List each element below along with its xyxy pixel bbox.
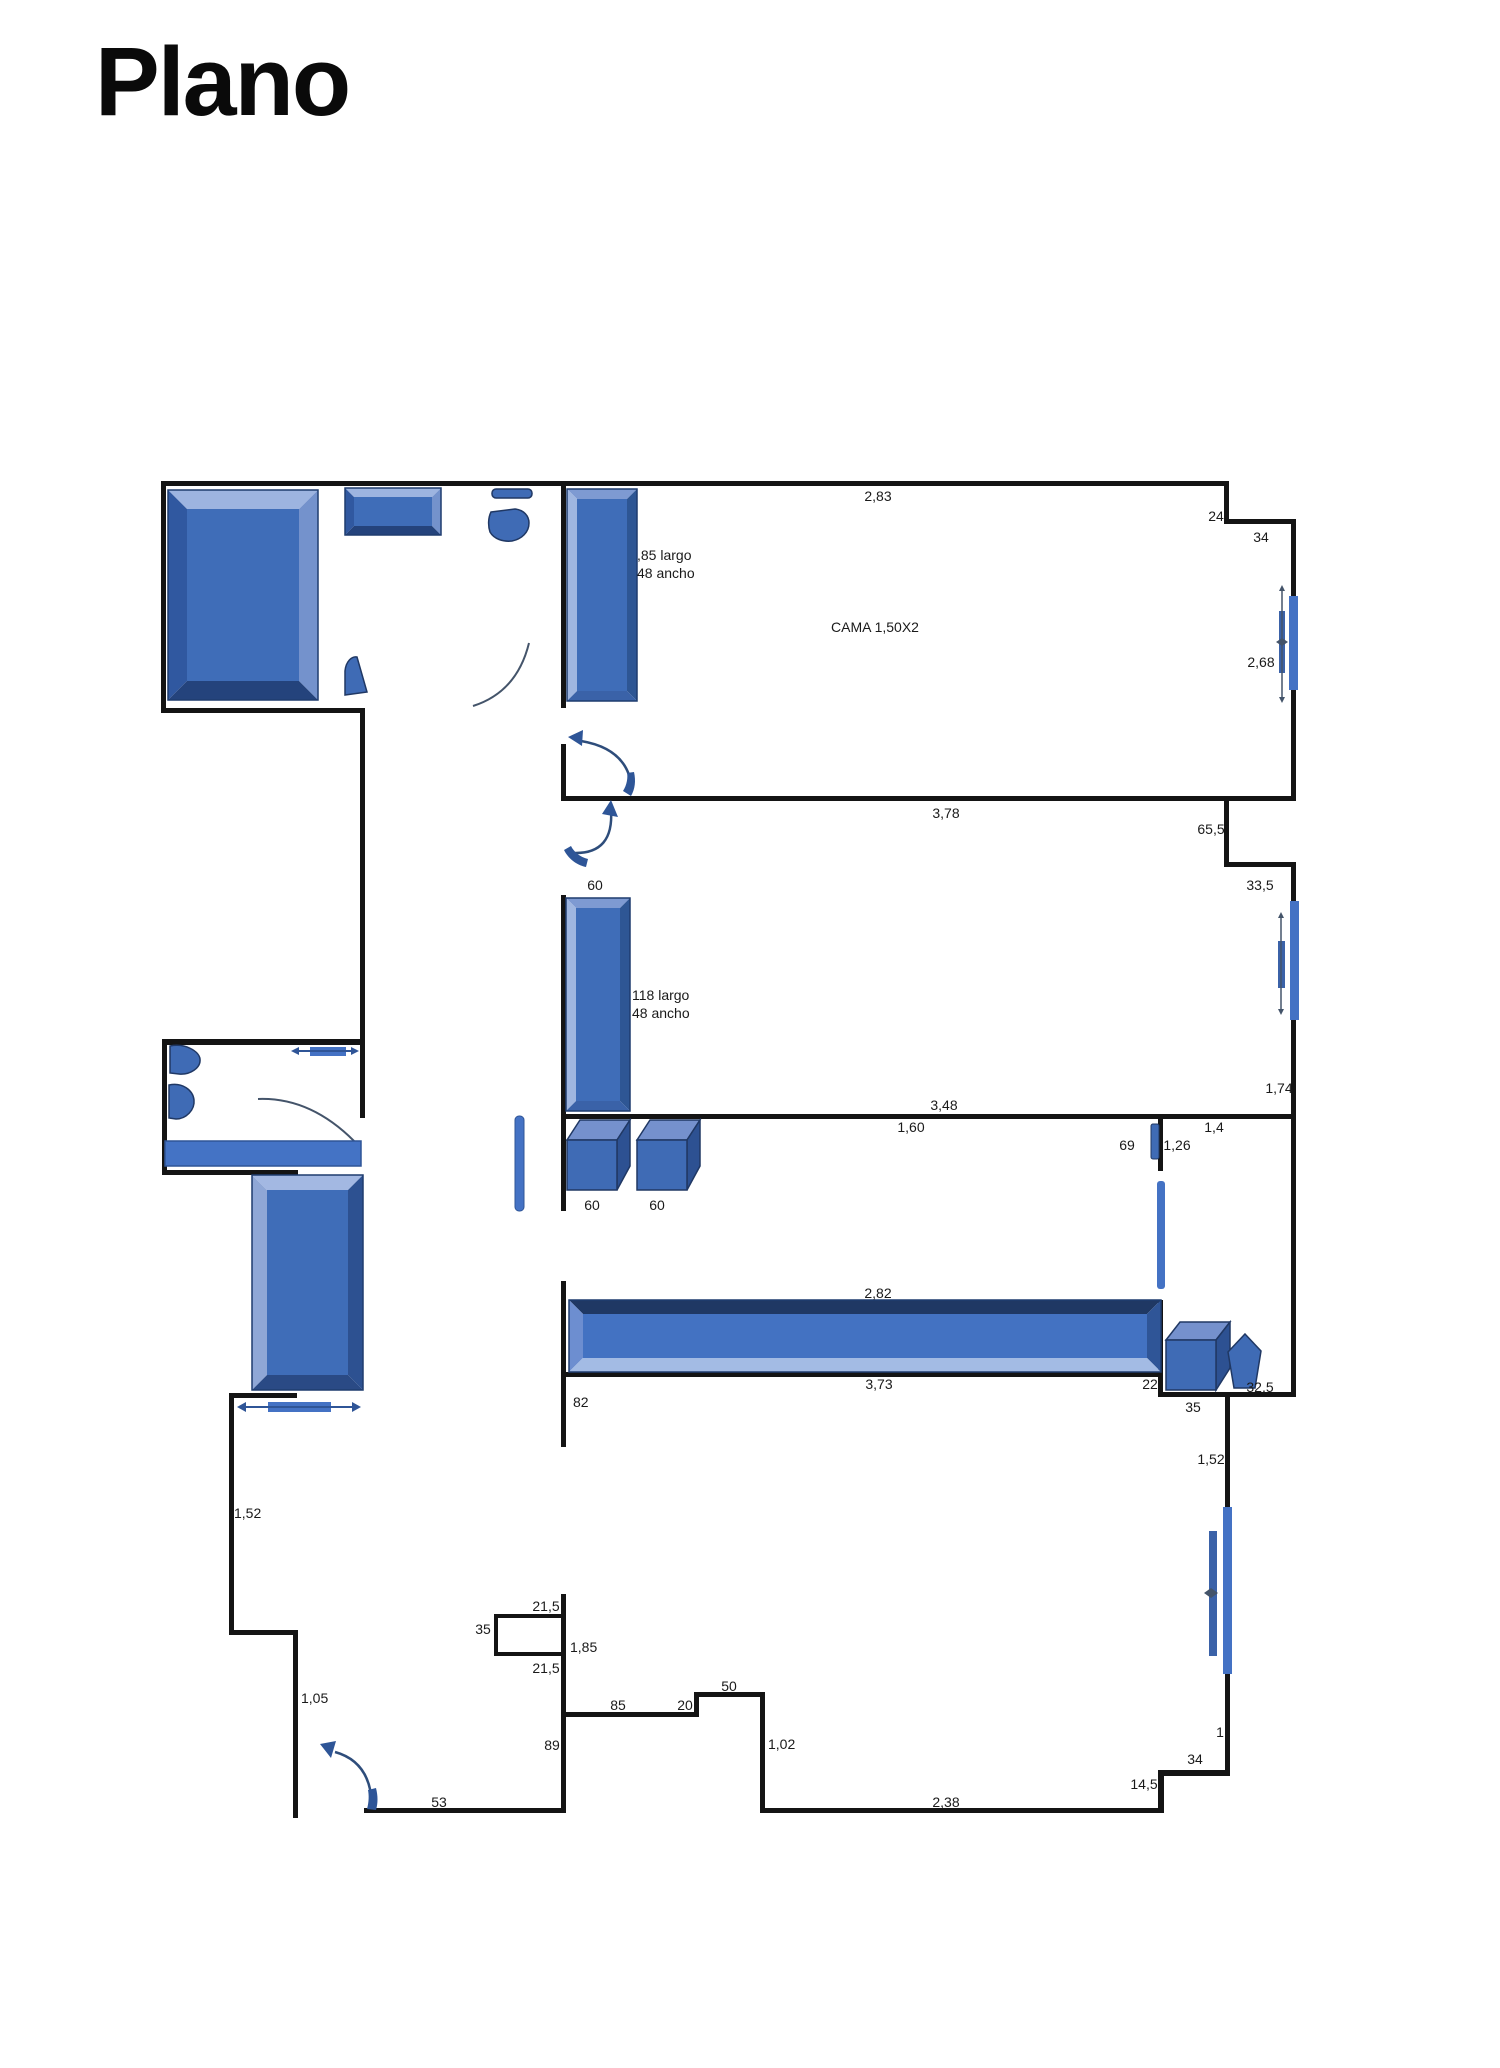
- svg-text:33,5: 33,5: [1246, 877, 1273, 893]
- svg-text:24: 24: [1208, 508, 1224, 524]
- svg-text:34: 34: [1253, 529, 1269, 545]
- svg-text:3,48: 3,48: [930, 1097, 957, 1113]
- svg-text:1,60: 1,60: [897, 1119, 924, 1135]
- svg-text:85: 85: [610, 1697, 626, 1713]
- svg-text:35: 35: [1185, 1399, 1201, 1415]
- svg-text:1,52: 1,52: [234, 1505, 261, 1521]
- svg-text:14,5: 14,5: [1130, 1776, 1157, 1792]
- svg-text:35: 35: [475, 1621, 491, 1637]
- svg-text:22: 22: [1142, 1376, 1158, 1392]
- svg-text:60: 60: [587, 877, 603, 893]
- svg-text:,85 largo: ,85 largo: [637, 547, 692, 563]
- svg-text:65,5: 65,5: [1197, 821, 1224, 837]
- svg-text:69: 69: [1119, 1137, 1135, 1153]
- svg-text:2,68: 2,68: [1247, 654, 1274, 670]
- svg-text:48 ancho: 48 ancho: [632, 1005, 690, 1021]
- svg-text:21,5: 21,5: [532, 1598, 559, 1614]
- svg-text:32,5: 32,5: [1246, 1379, 1273, 1395]
- svg-text:53: 53: [431, 1794, 447, 1810]
- svg-text:48 ancho: 48 ancho: [637, 565, 695, 581]
- svg-text:20: 20: [677, 1697, 693, 1713]
- svg-text:2,82: 2,82: [864, 1285, 891, 1301]
- svg-text:2,38: 2,38: [932, 1794, 959, 1810]
- svg-text:2,83: 2,83: [864, 488, 891, 504]
- svg-text:1,52: 1,52: [1197, 1451, 1224, 1467]
- svg-text:CAMA 1,50X2: CAMA 1,50X2: [831, 619, 919, 635]
- svg-text:3,73: 3,73: [865, 1376, 892, 1392]
- svg-text:50: 50: [721, 1678, 737, 1694]
- svg-text:1: 1: [1216, 1724, 1224, 1740]
- svg-text:3,78: 3,78: [932, 805, 959, 821]
- svg-text:118 largo: 118 largo: [632, 987, 690, 1003]
- svg-text:1,05: 1,05: [301, 1690, 328, 1706]
- svg-text:60: 60: [649, 1197, 665, 1213]
- svg-text:89: 89: [544, 1737, 560, 1753]
- svg-text:1,02: 1,02: [768, 1736, 795, 1752]
- svg-text:82: 82: [573, 1394, 589, 1410]
- svg-text:60: 60: [584, 1197, 600, 1213]
- svg-text:1,26: 1,26: [1163, 1137, 1190, 1153]
- svg-text:1,74: 1,74: [1265, 1080, 1292, 1096]
- svg-text:34: 34: [1187, 1751, 1203, 1767]
- svg-text:1,85: 1,85: [570, 1639, 597, 1655]
- svg-text:1,4: 1,4: [1204, 1119, 1224, 1135]
- svg-text:21,5: 21,5: [532, 1660, 559, 1676]
